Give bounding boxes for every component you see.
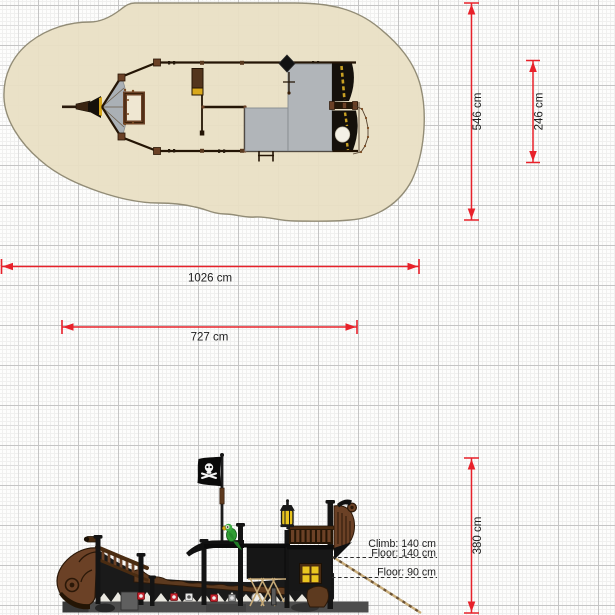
mid-panel <box>247 548 285 579</box>
lower-floor-height-label: Floor: 90 cm <box>377 567 436 579</box>
stern-deck <box>288 64 332 151</box>
top-view <box>4 3 424 221</box>
dim-label-380: 380 cm <box>472 517 484 555</box>
side-view <box>57 453 421 613</box>
flag-mast-band <box>220 488 224 504</box>
tail-curl-eye <box>350 506 353 509</box>
dim-546-arrow-bottom <box>468 209 476 220</box>
stern-railing-top <box>288 526 335 530</box>
dim-727-arrow-left <box>63 323 74 331</box>
parrot-eye <box>227 526 229 528</box>
dimension-safety-zone-length: 1026 cm <box>2 259 420 285</box>
stern-railing-bg <box>289 528 333 544</box>
safety-zone <box>4 3 424 221</box>
skull-icon <box>205 463 213 471</box>
plan-drawing: 546 cm 246 cm 1026 cm 727 cm <box>0 0 615 615</box>
porthole-red-2 <box>171 594 178 601</box>
bow-frame <box>125 94 143 123</box>
dim-label-246: 246 cm <box>534 93 546 131</box>
upper-floor-height-label: Floor: 140 cm <box>371 548 436 560</box>
dim-label-546: 546 cm <box>472 93 484 131</box>
mid-deck <box>245 108 288 151</box>
dim-380-arrow-bottom <box>468 602 476 613</box>
stern-floor-beam <box>287 545 334 550</box>
dimension-overall-height: 380 cm <box>464 458 484 613</box>
skull-eye-left <box>206 466 208 468</box>
dimension-safety-zone-width: 546 cm <box>464 3 484 220</box>
dim-246-arrow-bottom <box>529 151 537 162</box>
stern-tail <box>334 500 356 560</box>
lantern-icon <box>280 499 295 529</box>
flag-mast-ball <box>220 453 224 457</box>
stern-hull-bulge <box>307 586 329 607</box>
lantern-cap <box>280 505 295 511</box>
porthole-gray-square <box>229 595 236 602</box>
mast-beam-foot <box>200 131 205 136</box>
porthole-white-square <box>186 594 193 601</box>
lantern-knob <box>286 499 289 502</box>
bow-scroll-eye <box>70 583 75 588</box>
skull-eye-right <box>210 466 212 468</box>
dim-1026-arrow-right <box>408 263 419 271</box>
dim-380-arrow-top <box>468 459 476 470</box>
mid-panel-beam <box>242 544 290 548</box>
ground-shadow-1 <box>95 604 115 613</box>
pirate-flag-icon <box>198 457 223 487</box>
bow-crate <box>121 592 138 610</box>
porthole-red-1 <box>138 593 145 600</box>
skull-jaw <box>207 471 212 473</box>
blueprint-canvas: 546 cm 246 cm 1026 cm 727 cm <box>0 0 615 615</box>
dim-label-1026: 1026 cm <box>188 273 232 285</box>
mast-rig-knob <box>287 91 290 94</box>
dimension-ship-width: 246 cm <box>526 61 546 163</box>
dim-label-727: 727 cm <box>191 332 229 344</box>
porthole-red-3 <box>211 595 218 602</box>
hanging-bar <box>272 588 277 605</box>
lantern-body <box>282 510 294 525</box>
dim-546-arrow-top <box>468 4 476 15</box>
steps-box-yellow <box>192 88 203 95</box>
stern-hole <box>335 127 349 142</box>
steps-box <box>192 69 203 89</box>
dim-1026-arrow-left <box>3 263 14 271</box>
dim-727-arrow-right <box>346 323 357 331</box>
bow-cannon-muzzle <box>84 537 89 542</box>
dimension-ship-length: 727 cm <box>62 320 357 344</box>
dim-246-arrow-top <box>529 62 537 73</box>
